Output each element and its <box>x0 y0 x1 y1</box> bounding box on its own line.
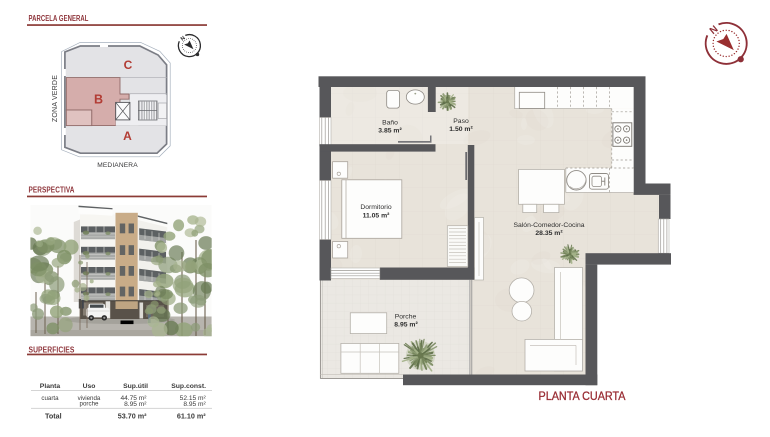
svg-text:Sup.útil: Sup.útil <box>123 383 148 390</box>
svg-text:B: B <box>94 92 103 106</box>
svg-text:53.70 m²: 53.70 m² <box>118 411 147 420</box>
svg-text:Total: Total <box>45 411 62 420</box>
svg-text:C: C <box>124 58 133 72</box>
svg-text:Uso: Uso <box>83 383 96 390</box>
svg-text:8.95 m²: 8.95 m² <box>124 401 147 408</box>
svg-text:8.95 m²: 8.95 m² <box>394 322 418 329</box>
svg-text:1.50 m²: 1.50 m² <box>449 126 473 133</box>
svg-text:11.05 m²: 11.05 m² <box>363 212 391 219</box>
svg-text:A: A <box>123 129 132 143</box>
svg-text:SUPERFICIES: SUPERFICIES <box>29 345 75 354</box>
svg-text:Dormitorio: Dormitorio <box>360 204 392 211</box>
svg-text:PLANTA CUARTA: PLANTA CUARTA <box>539 389 627 403</box>
svg-text:MEDIANERA: MEDIANERA <box>97 162 138 169</box>
svg-text:cuarta: cuarta <box>41 395 59 402</box>
svg-text:61.10 m²: 61.10 m² <box>177 411 206 420</box>
svg-text:porche: porche <box>80 401 99 408</box>
svg-text:PERSPECTIVA: PERSPECTIVA <box>29 185 75 194</box>
svg-text:Planta: Planta <box>40 383 61 390</box>
svg-text:8.95 m²: 8.95 m² <box>183 401 206 408</box>
svg-text:Sup.const.: Sup.const. <box>171 383 206 390</box>
svg-text:PARCELA GENERAL: PARCELA GENERAL <box>29 14 89 23</box>
svg-text:Baño: Baño <box>382 120 398 127</box>
svg-text:Paso: Paso <box>453 118 469 125</box>
svg-text:Salón-Comedor-Cocina: Salón-Comedor-Cocina <box>513 222 584 229</box>
svg-text:3.85 m²: 3.85 m² <box>378 128 402 135</box>
svg-text:Porche: Porche <box>395 313 417 320</box>
svg-text:28.35 m²: 28.35 m² <box>535 230 563 237</box>
svg-text:ZONA VERDE: ZONA VERDE <box>52 75 59 122</box>
